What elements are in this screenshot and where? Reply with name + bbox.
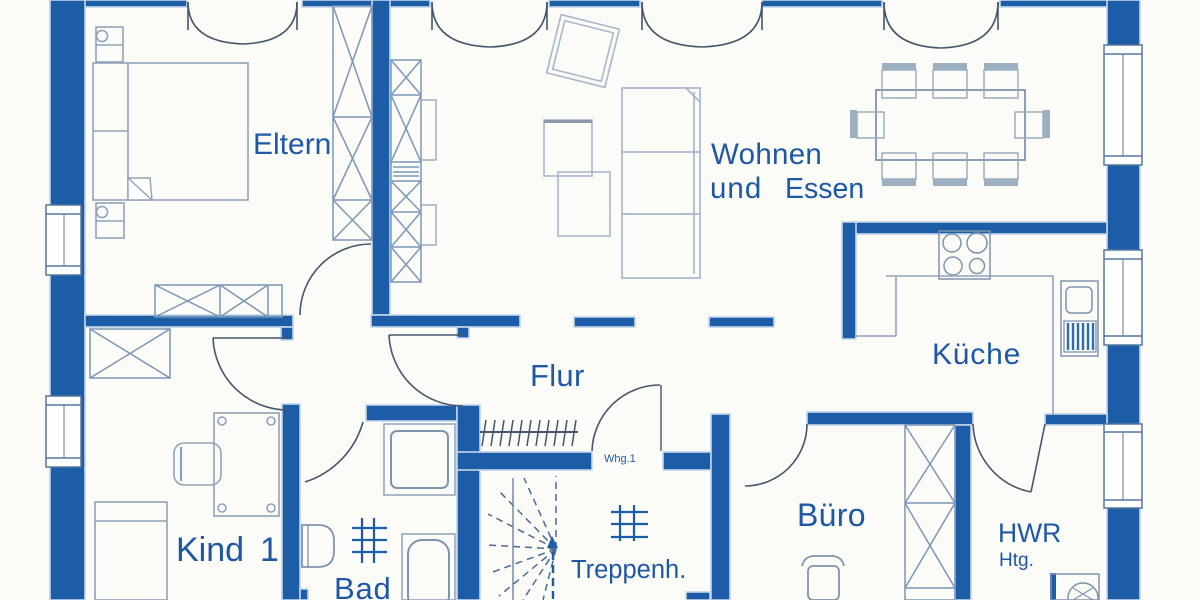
svg-text:Whg.1: Whg.1 xyxy=(604,453,636,465)
svg-text:Htg.: Htg. xyxy=(999,550,1034,571)
svg-text:HWR: HWR xyxy=(998,518,1061,548)
svg-text:Kind: Kind xyxy=(176,531,244,569)
svg-text:Treppenh.: Treppenh. xyxy=(571,556,686,584)
svg-text:Eltern: Eltern xyxy=(253,128,331,161)
svg-text:und: und xyxy=(710,172,762,205)
svg-text:Wohnen: Wohnen xyxy=(711,138,822,171)
svg-text:1: 1 xyxy=(260,531,279,569)
svg-text:Flur: Flur xyxy=(530,358,585,393)
svg-text:Büro: Büro xyxy=(797,497,866,533)
svg-text:Bad: Bad xyxy=(334,571,392,600)
svg-text:Küche: Küche xyxy=(932,338,1021,371)
svg-text:Essen: Essen xyxy=(785,173,864,205)
